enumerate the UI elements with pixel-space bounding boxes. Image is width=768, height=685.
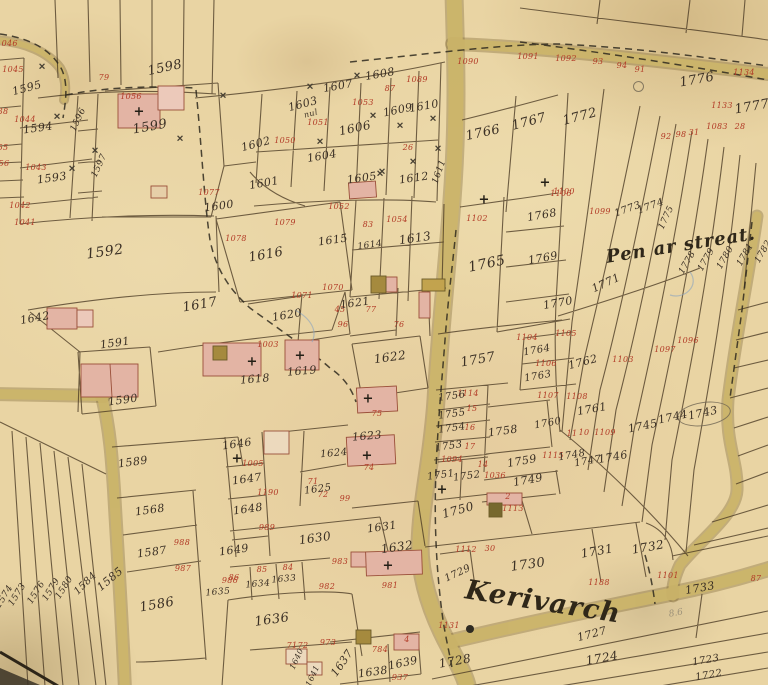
map-linework	[0, 0, 768, 685]
cadastral-map[interactable]: ✕✕✕✕✕✕✕✕✕✕✕✕✕✕✕✕++++++++++ 1046104510441…	[0, 0, 768, 685]
pencil-scribbles	[295, 272, 693, 342]
